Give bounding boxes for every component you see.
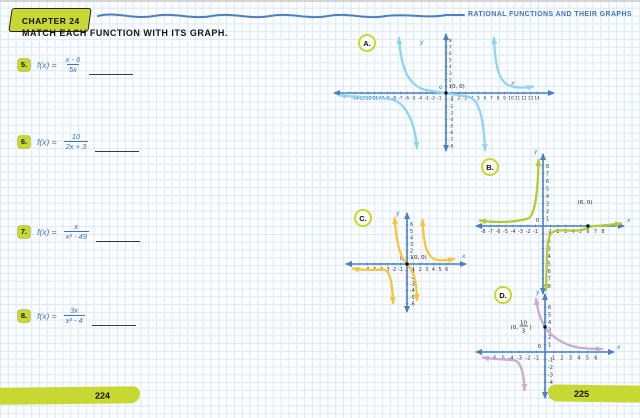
function-fraction: x - 6 5x [64, 55, 83, 75]
tick-label: -7 [398, 96, 403, 101]
answer-blank [95, 139, 139, 152]
tick-label: 8 [449, 38, 452, 43]
tick-label: 2 [560, 355, 563, 361]
tick-label: 2 [449, 77, 452, 82]
y-axis-label: y [533, 148, 538, 155]
x-axis-label: x [616, 344, 621, 351]
tick-label: -7 [488, 229, 493, 235]
origin-label: 0 [439, 85, 442, 91]
wavy-divider-line [96, 7, 468, 25]
tick-label: -6 [410, 301, 415, 307]
tick-label: 8 [546, 164, 549, 170]
problem-row-7: 7. f(x) = x x² - 49 [18, 222, 140, 242]
tick-label: 4 [546, 194, 549, 200]
tick-label: 6 [410, 222, 413, 228]
function-notation: f(x) = [37, 311, 57, 321]
tick-label: 6 [548, 305, 551, 311]
tick-label: 9 [503, 96, 506, 101]
tick-label: -4 [511, 229, 516, 235]
tick-label: 1 [548, 342, 551, 348]
tick-label: -5 [503, 229, 508, 235]
function-notation: f(x) = [37, 137, 57, 147]
tick-label: 3 [546, 201, 549, 207]
marked-point-label: (0, 0) [412, 255, 427, 261]
graph-a: -14-13-12-11-10-9-8-7-6-5-4-3-2-11234567… [326, 28, 640, 160]
tick-label: 5 [410, 229, 413, 235]
tick-label: 7 [546, 171, 549, 177]
tick-label: -8 [449, 143, 454, 148]
tick-label: 5 [546, 186, 549, 192]
fraction-numerator: 3x [68, 306, 80, 315]
function-notation: f(x) = [37, 60, 57, 70]
tick-label: 4 [432, 267, 435, 273]
tick-label: -3 [517, 355, 522, 361]
tick-label: -5 [411, 96, 416, 101]
tick-label: 4 [577, 355, 580, 361]
tick-label: 2 [419, 267, 422, 273]
page-title: RATIONAL FUNCTIONS AND THEIR GRAPHS [468, 11, 632, 18]
origin-label: 0 [538, 344, 541, 350]
tick-label: 2 [410, 249, 413, 255]
tick-label: -5 [410, 295, 415, 301]
tick-label: 12 [521, 96, 527, 101]
marked-point-label: (0, 0) [450, 84, 465, 90]
curve-left-branch [480, 160, 539, 222]
graph-b: -8-7-6-5-4-3-2-11234567887654321-1-2-3-4… [466, 146, 640, 298]
tick-label: -5 [449, 124, 454, 129]
tick-label: 7 [449, 44, 452, 49]
marked-point-label: (6, 0) [578, 200, 593, 206]
tick-label: -8 [481, 229, 486, 235]
marked-point-label: (0, 10 3 ) [511, 321, 532, 335]
tick-label: 5 [586, 355, 589, 361]
y-axis-label: y [535, 289, 540, 296]
tick-label: -1 [398, 267, 403, 273]
problem-number-badge: 7. [18, 226, 30, 238]
curve-right-branch [536, 299, 602, 349]
tick-label: -3 [424, 96, 429, 101]
tick-label: -3 [518, 229, 523, 235]
svg-text:): ) [530, 325, 532, 331]
tick-label: 3 [449, 71, 452, 76]
workbook-page: CHAPTER 24 RATIONAL FUNCTIONS AND THEIR … [0, 0, 640, 418]
tick-label: -2 [449, 104, 454, 109]
fraction-numerator: 10 [70, 132, 82, 141]
function-notation: f(x) = [37, 227, 57, 237]
tick-label: -1 [449, 97, 454, 102]
tick-label: 14 [534, 96, 540, 101]
tick-label: -4 [410, 288, 415, 294]
function-fraction: 10 2x + 3 [64, 132, 89, 152]
answer-blank [96, 229, 140, 242]
graph-c: -6-5-4-3-2-1123456654321-1-2-3-4-5-6 x y… [326, 201, 476, 319]
x-axis-label: x [461, 253, 466, 260]
tick-label: -6 [496, 229, 501, 235]
tick-label: 6 [449, 51, 452, 56]
tick-label: 10 [508, 96, 514, 101]
y-axis-label: y [419, 39, 424, 46]
tick-label: 6 [484, 96, 487, 101]
tick-label: 11 [515, 96, 521, 101]
fraction-numerator: x - 6 [64, 55, 83, 64]
tick-label: -1 [548, 357, 553, 363]
marked-point [405, 262, 408, 265]
tick-label: 6 [445, 267, 448, 273]
tick-label: -2 [526, 229, 531, 235]
curve-left-branch [340, 96, 417, 149]
fraction-denominator: 5x [67, 64, 79, 74]
page-number-left: 224 [0, 386, 140, 404]
svg-text:(0,: (0, [511, 325, 519, 331]
tick-label: -2 [526, 355, 531, 361]
problem-number-badge: 8. [18, 310, 30, 322]
tick-label: -1 [437, 96, 442, 101]
answer-blank [89, 62, 133, 75]
tick-label: -4 [418, 96, 423, 101]
tick-label: 5 [438, 267, 441, 273]
svg-text:10: 10 [520, 321, 527, 327]
fraction-denominator: x² - 4 [64, 315, 85, 325]
problem-row-5: 5. f(x) = x - 6 5x [18, 55, 133, 75]
tick-label: 4 [548, 320, 551, 326]
problem-row-6: 6. f(x) = 10 2x + 3 [18, 132, 139, 152]
tick-label: 2 [546, 209, 549, 215]
problem-number-badge: 5. [18, 59, 30, 71]
tick-label: 5 [449, 58, 452, 63]
tick-label: 6 [546, 179, 549, 185]
page-top-edge [0, 0, 640, 2]
chapter-tab-label: CHAPTER 24 [22, 16, 80, 26]
tick-label: -2 [391, 267, 396, 273]
tick-label: 2 [548, 335, 551, 341]
tick-label: 3 [569, 355, 572, 361]
tick-label: -1 [533, 229, 538, 235]
tick-label: -6 [449, 130, 454, 135]
function-fraction: 3x x² - 4 [64, 306, 85, 326]
curve-left-branch [353, 269, 393, 304]
tick-label: 3 [410, 242, 413, 248]
tick-label: 3 [425, 267, 428, 273]
problem-row-8: 8. f(x) = 3x x² - 4 [18, 306, 136, 326]
answer-blank [92, 313, 136, 326]
y-axis-label: y [395, 210, 400, 217]
tick-label: -2 [431, 96, 436, 101]
x-axis-label: x [626, 217, 631, 224]
tick-label: -1 [534, 355, 539, 361]
instruction-text: MATCH EACH FUNCTION WITH ITS GRAPH. [22, 28, 228, 38]
tick-label: 8 [497, 96, 500, 101]
tick-label: 7 [594, 229, 597, 235]
tick-label: -3 [548, 372, 553, 378]
fraction-denominator: 2x + 3 [64, 141, 89, 151]
tick-label: 4 [449, 64, 452, 69]
tick-label: -4 [449, 117, 454, 122]
problem-number-badge: 6. [18, 136, 30, 148]
fraction-denominator: x² - 49 [64, 231, 89, 241]
origin-label: 0 [536, 218, 539, 224]
tick-label: 13 [528, 96, 534, 101]
tick-label: 7 [490, 96, 493, 101]
tick-label: -3 [449, 110, 454, 115]
tick-label: 4 [410, 235, 413, 241]
tick-label: 8 [601, 229, 604, 235]
tick-label: 1 [546, 216, 549, 222]
marked-point [444, 91, 447, 94]
svg-text:3: 3 [522, 329, 526, 335]
tick-label: 5 [548, 312, 551, 318]
fraction-numerator: x [72, 222, 80, 231]
function-fraction: x x² - 49 [64, 222, 89, 242]
marked-point [543, 325, 546, 328]
tick-label: 6 [594, 355, 597, 361]
tick-label: -6 [405, 96, 410, 101]
marked-point [586, 224, 589, 227]
curve-left-branch [483, 358, 525, 391]
tick-label: -2 [548, 365, 553, 371]
tick-label: 5 [477, 96, 480, 101]
curve-right-branch [423, 220, 455, 260]
tick-label: -7 [449, 137, 454, 142]
tick-label: 6 [586, 229, 589, 235]
page-number-right: 225 [548, 384, 640, 402]
tick-label: -3 [410, 282, 415, 288]
